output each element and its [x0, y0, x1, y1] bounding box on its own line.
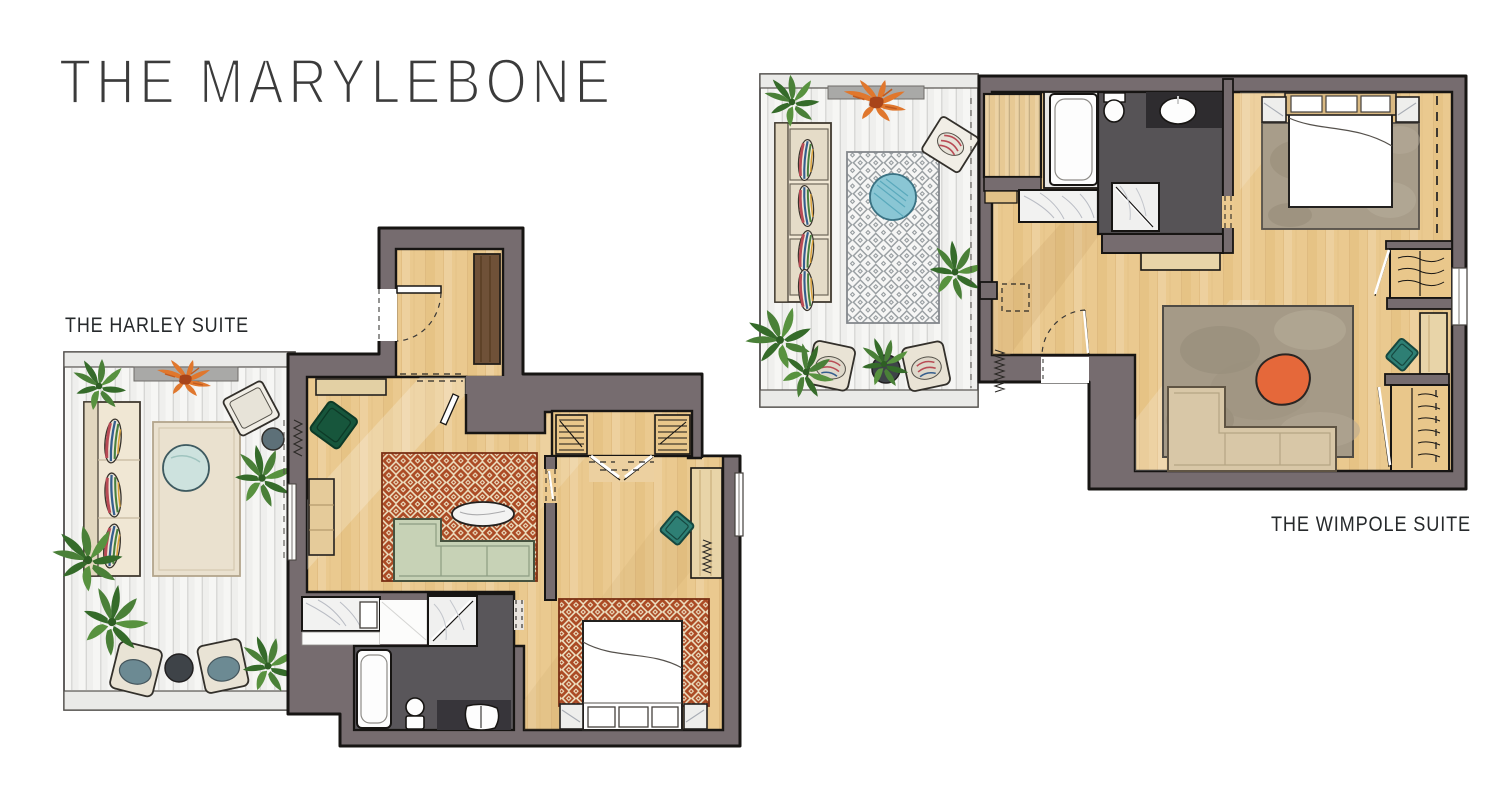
svg-text:THE WIMPOLE SUITE: THE WIMPOLE SUITE [1271, 513, 1471, 536]
svg-text:THE MARYLEBONE: THE MARYLEBONE [59, 47, 615, 117]
svg-text:THE HARLEY SUITE: THE HARLEY SUITE [65, 314, 249, 337]
